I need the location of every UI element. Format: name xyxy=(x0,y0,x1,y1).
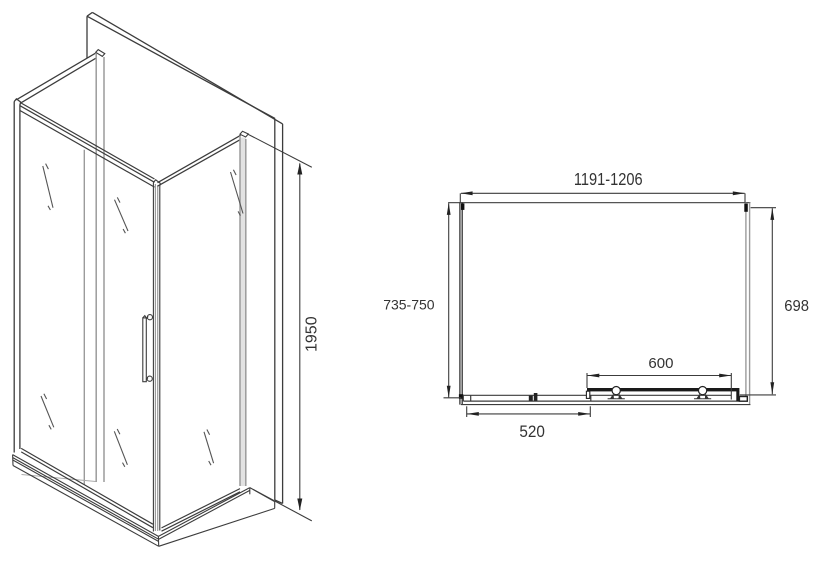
svg-text:735-750: 735-750 xyxy=(383,296,435,312)
svg-text:600: 600 xyxy=(648,355,673,372)
svg-text:698: 698 xyxy=(784,298,809,316)
svg-text:520: 520 xyxy=(519,422,545,441)
svg-text:1950: 1950 xyxy=(304,316,321,352)
svg-text:1191-1206: 1191-1206 xyxy=(574,170,643,189)
